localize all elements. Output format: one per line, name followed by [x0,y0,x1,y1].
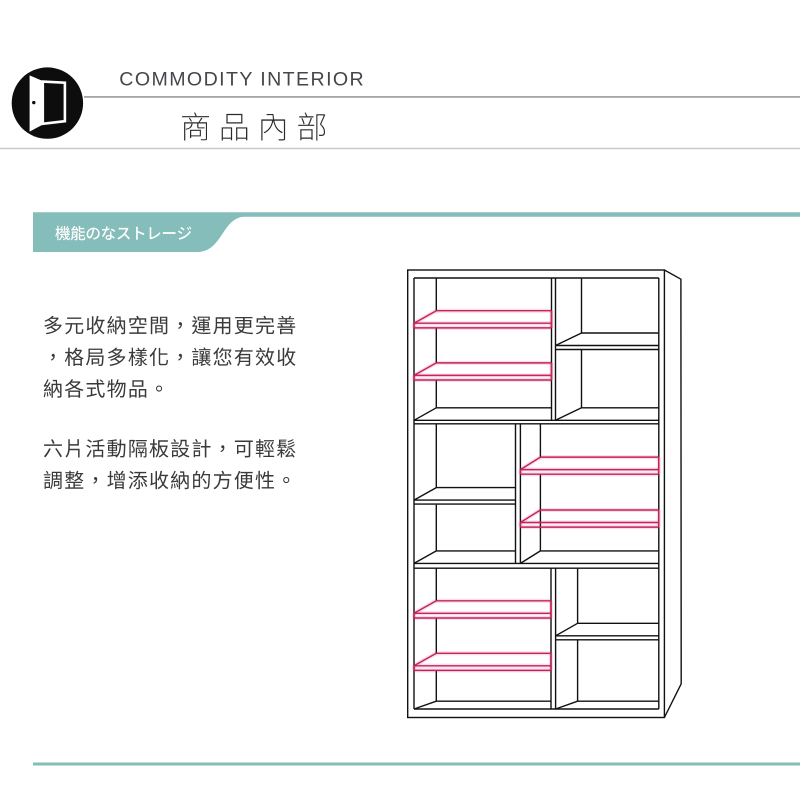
svg-text:COMMODITY INTERIOR: COMMODITY INTERIOR [119,68,365,90]
